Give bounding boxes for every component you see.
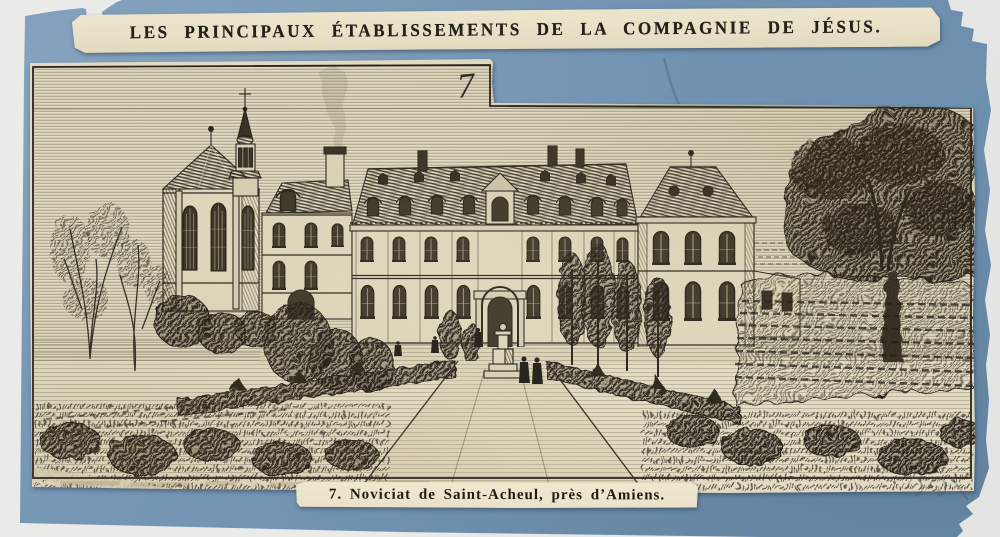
scanned-page: LES PRINCIPAUX ÉTABLISSEMENTS DE LA COMP… bbox=[0, 0, 1000, 537]
blue-mounting-card bbox=[0, 0, 1000, 537]
